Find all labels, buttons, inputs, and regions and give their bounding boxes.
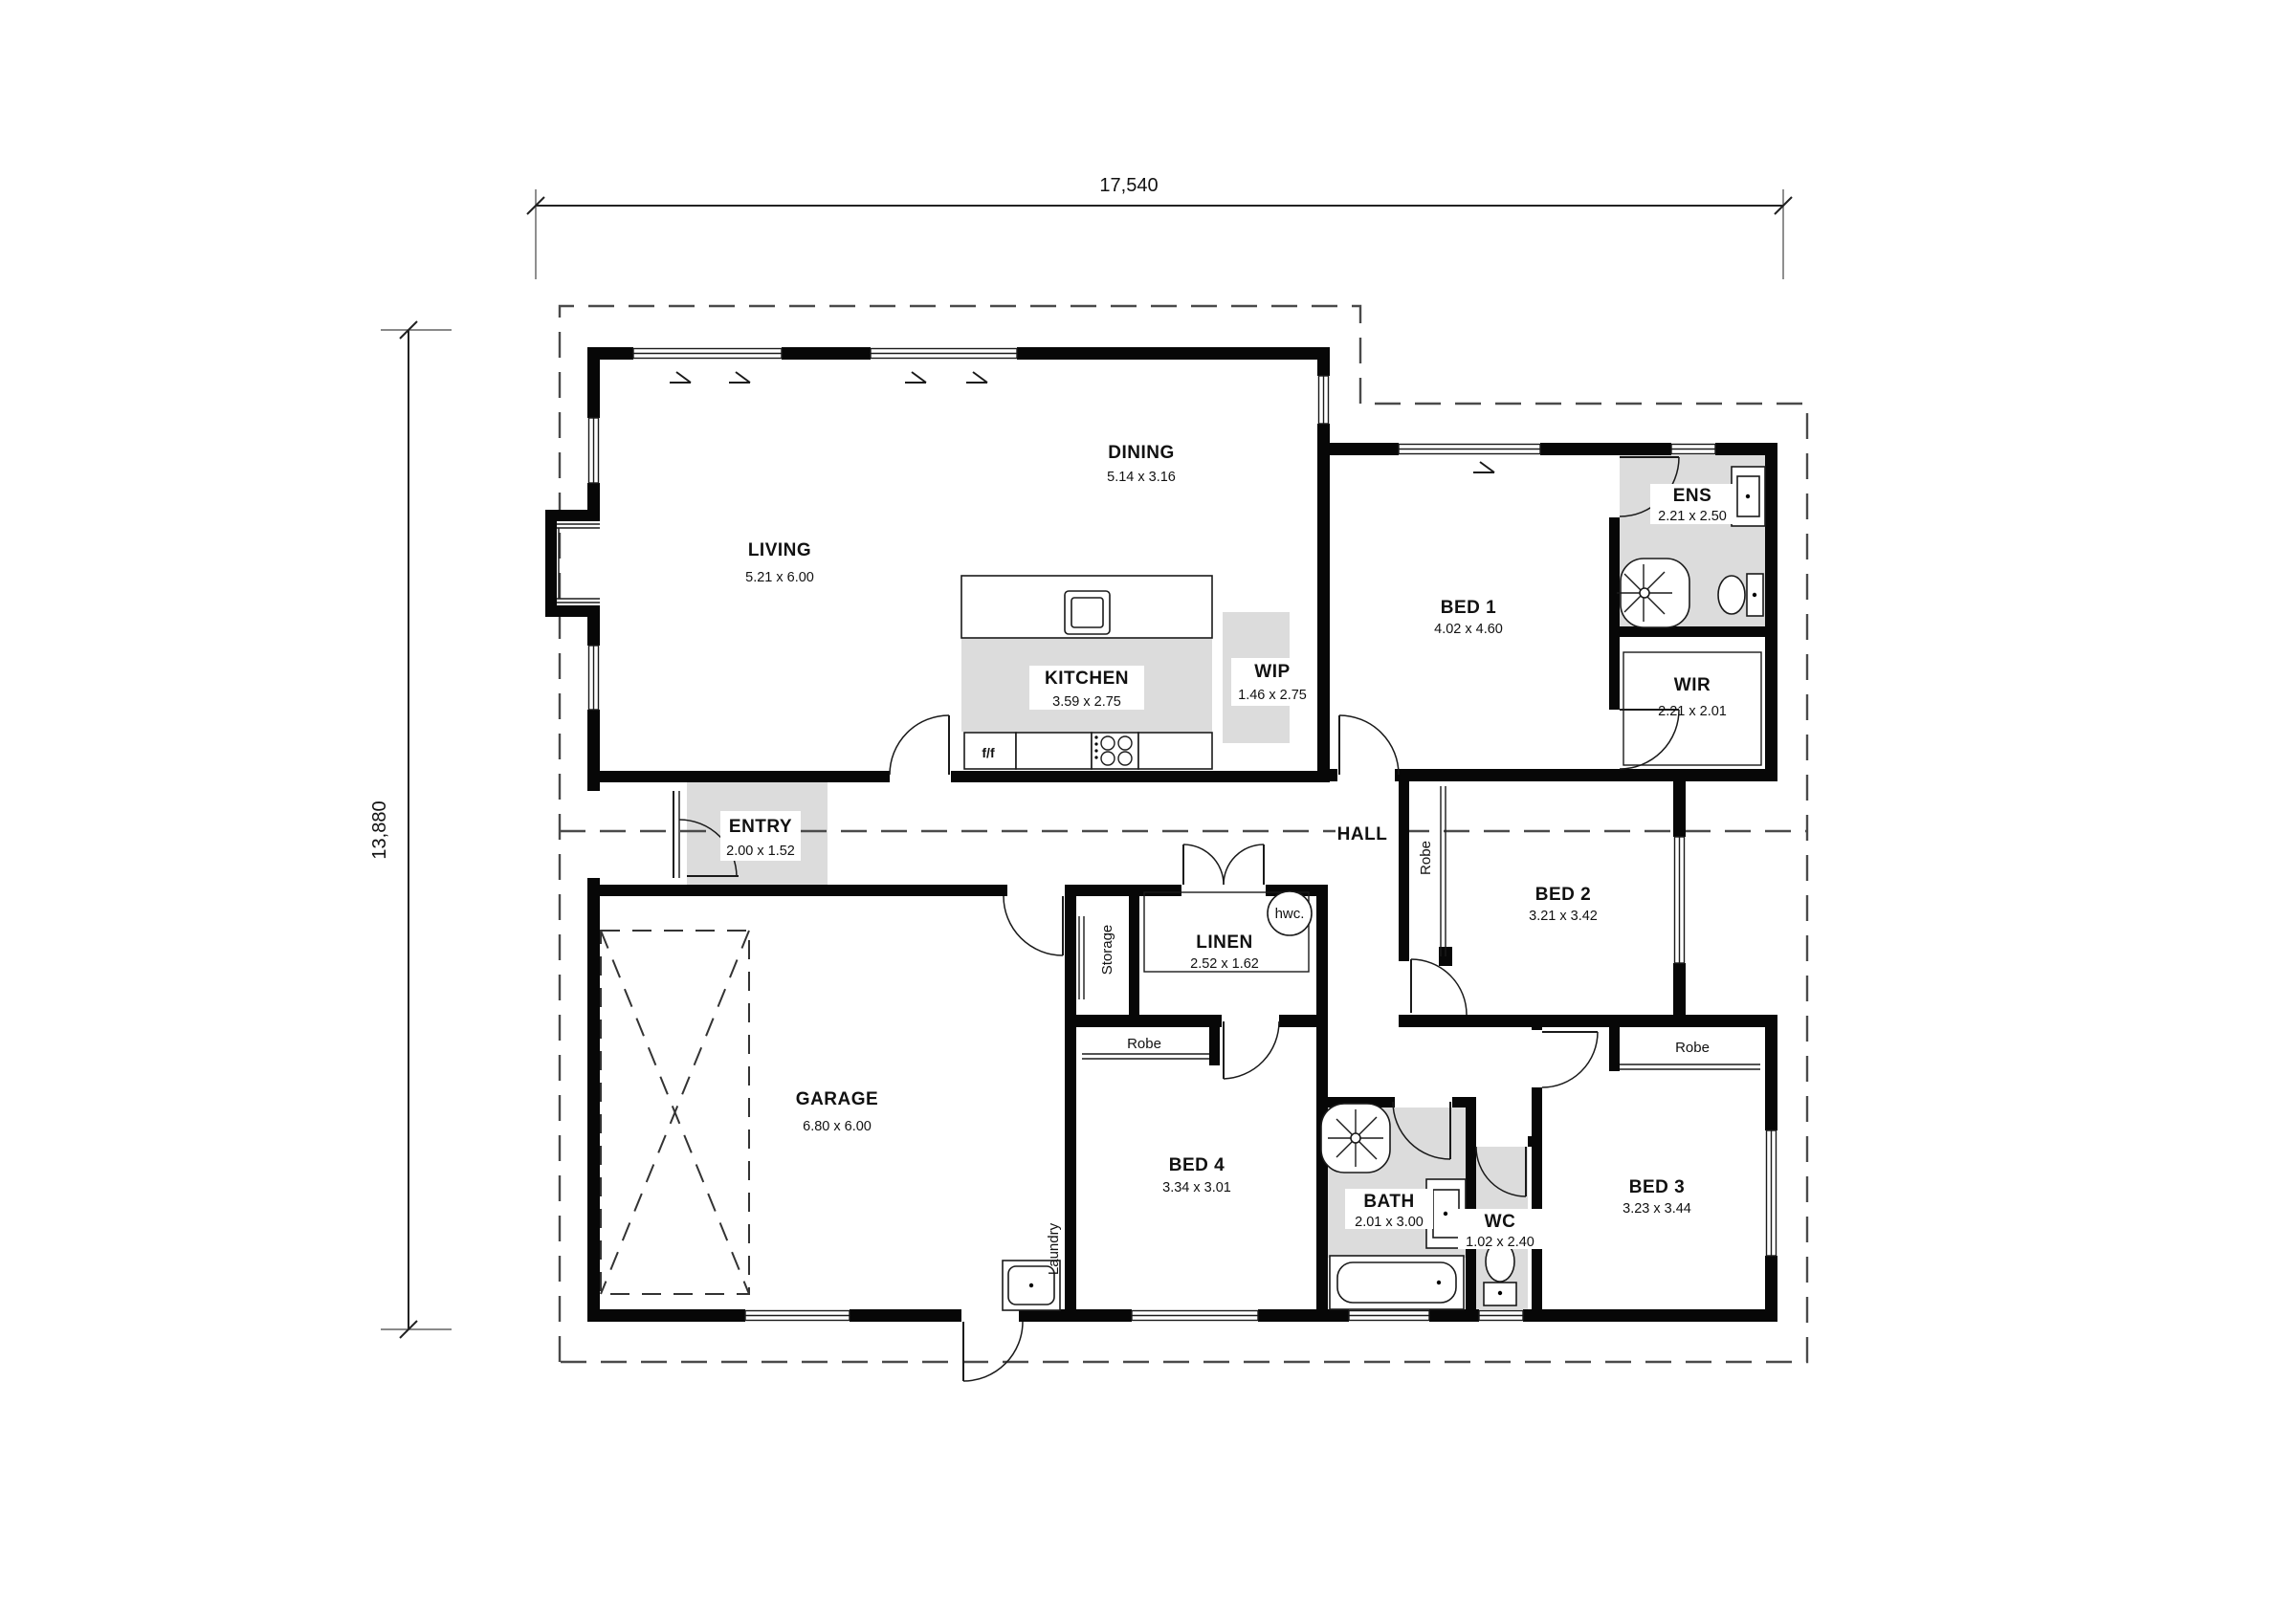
bay-window xyxy=(557,524,600,603)
living-hall-door xyxy=(890,715,949,775)
bed2-robe-slider xyxy=(1441,786,1446,956)
room-dims-bed4: 3.34 x 3.01 xyxy=(1162,1180,1231,1195)
garage-car-space xyxy=(601,931,749,1294)
floor-plan-canvas: 17,540 13,880 xyxy=(0,0,2296,1623)
room-label-bed4: BED 4 xyxy=(1169,1155,1225,1175)
room-dims-ens: 2.21 x 2.50 xyxy=(1658,509,1727,524)
dimension-top: 17,540 xyxy=(527,175,1792,279)
bed3-window xyxy=(1765,1130,1777,1256)
bed3-robe-label: Robe xyxy=(1675,1040,1710,1056)
room-label-living: LIVING xyxy=(748,540,811,560)
room-label-wip: WIP xyxy=(1254,662,1290,682)
room-dims-wir: 2.21 x 2.01 xyxy=(1658,704,1727,719)
room-dims-wip: 1.46 x 2.75 xyxy=(1238,688,1307,703)
bath-window xyxy=(1349,1309,1429,1322)
living-side-window-2 xyxy=(587,646,600,710)
room-label-ens: ENS xyxy=(1673,486,1712,506)
laundry-label: Laundry xyxy=(1046,1222,1062,1275)
room-label-hall: HALL xyxy=(1337,824,1388,844)
room-dims-bath: 2.01 x 3.00 xyxy=(1355,1215,1424,1230)
overall-width-label: 17,540 xyxy=(1099,175,1158,196)
overall-height-label: 13,880 xyxy=(369,801,390,859)
living-side-window-1 xyxy=(587,418,600,483)
room-dims-dining: 5.14 x 3.16 xyxy=(1107,470,1176,485)
living-window-2 xyxy=(871,347,1017,360)
bed4-robe-slider xyxy=(1082,1054,1209,1059)
kitchen-island xyxy=(961,576,1212,638)
living-window-1 xyxy=(633,347,782,360)
bed4-robe-label: Robe xyxy=(1127,1036,1161,1052)
room-label-bed3: BED 3 xyxy=(1629,1177,1685,1197)
kitchen-bench xyxy=(964,733,1212,769)
bed3-door xyxy=(1542,1032,1598,1087)
bed2-door xyxy=(1411,959,1467,1015)
room-label-wir: WIR xyxy=(1674,675,1711,695)
linen-double-doors xyxy=(1183,844,1264,885)
bed2-robe-label: Robe xyxy=(1418,841,1434,875)
room-label-bath: BATH xyxy=(1363,1192,1414,1212)
room-label-bed2: BED 2 xyxy=(1535,885,1591,905)
bed1-door xyxy=(1339,715,1399,775)
bath-tub xyxy=(1330,1256,1464,1309)
room-dims-bed3: 3.23 x 3.44 xyxy=(1623,1201,1691,1217)
room-label-linen: LINEN xyxy=(1196,932,1253,953)
wc-window xyxy=(1479,1309,1523,1322)
room-label-dining: DINING xyxy=(1108,443,1175,463)
room-dims-entry: 2.00 x 1.52 xyxy=(726,844,795,859)
room-dims-living: 5.21 x 6.00 xyxy=(745,570,814,585)
garage-internal-door xyxy=(1004,896,1063,955)
room-label-garage: GARAGE xyxy=(796,1089,878,1109)
room-label-wc: WC xyxy=(1485,1212,1516,1232)
bed2-window xyxy=(1673,837,1686,963)
bed4-window xyxy=(1132,1309,1258,1322)
ens-vanity xyxy=(1732,467,1765,526)
cooktop xyxy=(1092,733,1138,769)
bed3-robe-slider xyxy=(1620,1064,1760,1069)
room-label-entry: ENTRY xyxy=(729,817,792,837)
hwc-label: hwc. xyxy=(1275,906,1305,922)
dimension-left: 13,880 xyxy=(369,321,452,1338)
ens-toilet xyxy=(1718,574,1763,616)
floor-plan-drawing: 17,540 13,880 xyxy=(0,0,2296,1623)
room-dims-linen: 2.52 x 1.62 xyxy=(1190,956,1259,972)
ens-shower xyxy=(1617,559,1689,627)
hot-water-cylinder: hwc. xyxy=(1268,891,1312,935)
room-label-kitchen: KITCHEN xyxy=(1045,669,1129,689)
bed4-door xyxy=(1224,1021,1279,1079)
room-dims-wc: 1.02 x 2.40 xyxy=(1466,1235,1534,1250)
dining-side-window xyxy=(1317,376,1330,424)
bath-shower xyxy=(1321,1104,1390,1173)
garage-rear-door xyxy=(963,1322,1023,1381)
fridge-label: f/f xyxy=(982,745,995,760)
garage-window xyxy=(745,1309,850,1322)
room-dims-kitchen: 3.59 x 2.75 xyxy=(1052,694,1121,710)
storage-slider xyxy=(1079,916,1084,999)
room-dims-bed2: 3.21 x 3.42 xyxy=(1529,909,1598,924)
room-dims-garage: 6.80 x 6.00 xyxy=(803,1119,872,1134)
ens-window xyxy=(1671,443,1715,455)
room-labels: LIVING 5.21 x 6.00 DINING 5.14 x 3.16 KI… xyxy=(726,443,1727,1250)
bed1-window xyxy=(1399,443,1540,455)
storage-label: Storage xyxy=(1099,925,1115,976)
room-dims-bed1: 4.02 x 4.60 xyxy=(1434,622,1503,637)
wc-toilet xyxy=(1484,1241,1516,1305)
room-label-bed1: BED 1 xyxy=(1441,598,1496,618)
window-opening-ticks xyxy=(670,372,1494,472)
